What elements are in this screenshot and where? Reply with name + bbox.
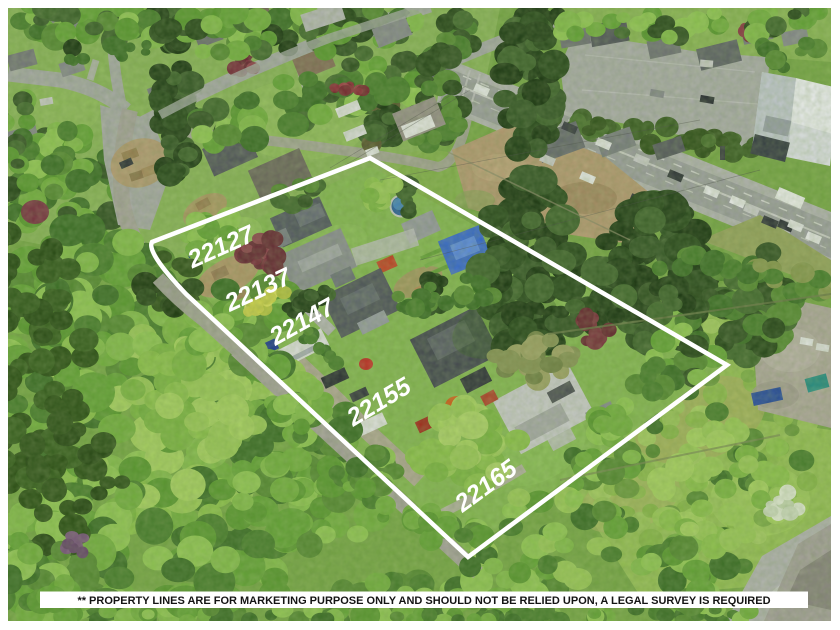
svg-text:** PROPERTY LINES ARE FOR MARK: ** PROPERTY LINES ARE FOR MARKETING PURP… [77,595,770,607]
